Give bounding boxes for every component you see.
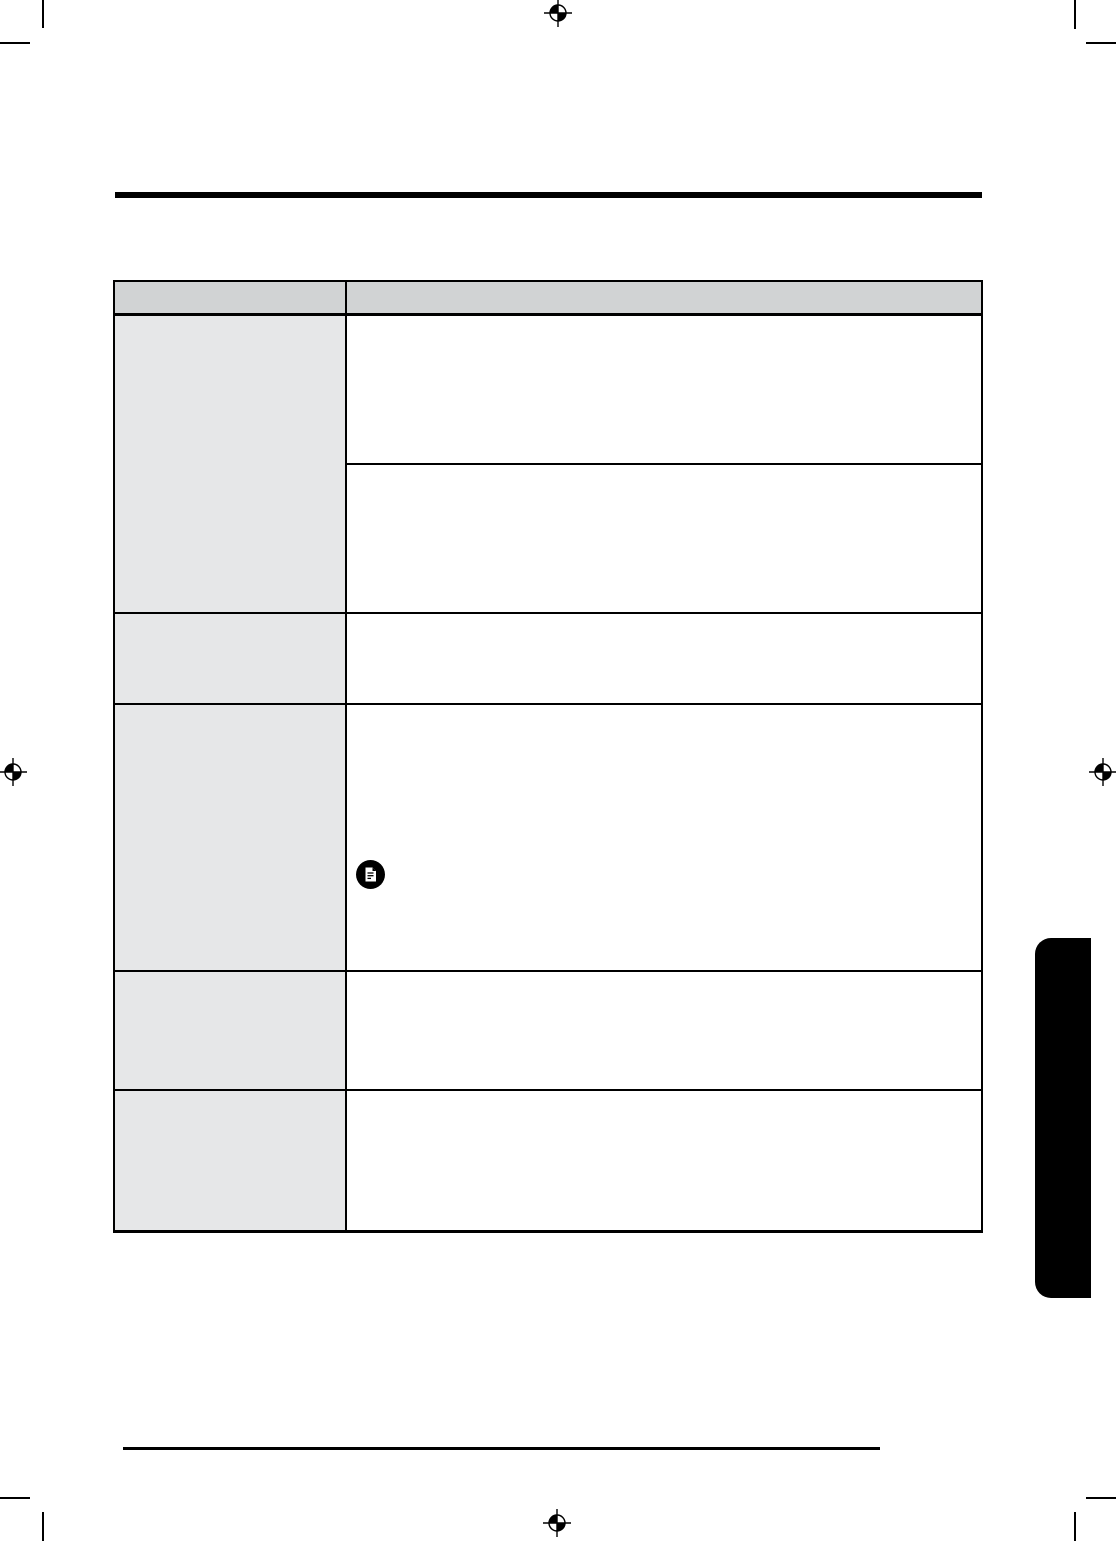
table-row [115,1091,981,1230]
crop-mark-icon [42,0,44,28]
note-document-icon [356,860,385,889]
table-row [115,316,981,614]
registration-target-icon [543,1509,571,1537]
troubleshooting-table [113,280,983,1233]
col2-header-cell [347,282,981,313]
crop-mark-icon [1086,1497,1116,1499]
registration-target-icon [1089,758,1116,786]
table-row [115,972,981,1091]
registration-target-icon [0,758,27,786]
page-title [115,150,982,190]
table-header-row [115,282,981,316]
row-label-cell [115,614,347,703]
row-detail-cell [347,316,981,465]
row-label-cell [115,1091,347,1230]
crop-mark-icon [42,1512,44,1541]
footer-text [123,1456,880,1480]
footer-rule [123,1447,880,1450]
table-row [115,705,981,972]
crop-mark-icon [1086,42,1116,44]
row-detail-group [347,316,981,612]
section-thumb-tab [1035,938,1091,1298]
crop-mark-icon [1074,1512,1076,1541]
row-detail-cell [347,1091,981,1230]
row-detail-cell [347,465,981,612]
row-detail-cell [347,705,981,970]
row-detail-cell [347,972,981,1089]
table-row [115,614,981,705]
document-page: { "page": { "background_color": "#ffffff… [0,0,1116,1541]
row-label-cell [115,705,347,970]
col1-header-cell [115,282,347,313]
crop-mark-icon [1074,0,1076,29]
row-detail-cell [347,614,981,703]
registration-target-icon [544,0,572,27]
crop-mark-icon [0,1497,30,1499]
header-rule [115,192,982,198]
crop-mark-icon [0,42,30,44]
row-label-cell [115,972,347,1089]
row-label-cell [115,316,347,612]
